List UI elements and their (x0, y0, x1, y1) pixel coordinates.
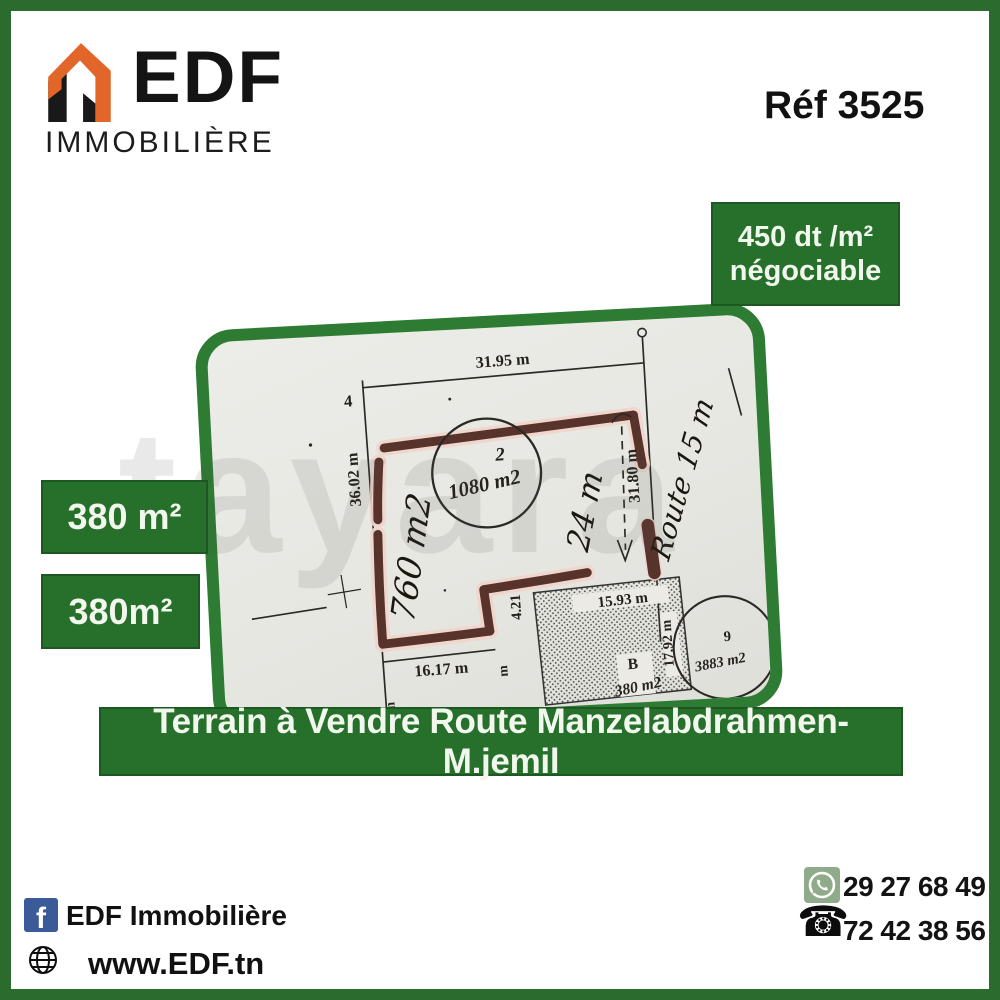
unit-m-label: m (495, 664, 511, 677)
area-badge-2: 380m² (41, 574, 200, 649)
survey-point-marker (638, 328, 647, 337)
house-logo-icon (46, 40, 114, 122)
lot9-number: 9 (723, 629, 731, 645)
facebook-page-name: EDF Immobilière (66, 900, 287, 932)
website-url: www.EDF.tn (88, 946, 264, 982)
lot-b-label: B (627, 655, 639, 673)
real-estate-poster: EDF IMMOBILIÈRE Réf 3525 450 dt /m² négo… (0, 0, 1000, 1000)
price-value: 450 dt /m² (730, 220, 882, 254)
globe-icon (27, 944, 59, 976)
phone-icon: ☎ (797, 901, 849, 943)
lot9-area: 3883 m2 (692, 650, 747, 676)
dim-top: 31.95 m (475, 350, 531, 372)
price-badge: 450 dt /m² négociable (711, 202, 900, 306)
phone-number: 72 42 38 56 (843, 915, 985, 947)
title-banner: Terrain à Vendre Route Manzelabdrahmen-M… (99, 707, 903, 776)
phone-glyph: ☎ (797, 897, 849, 946)
dim-step: 4.21 (508, 594, 526, 621)
dim-bottom: 16.17 m (414, 659, 470, 681)
brand-subtitle: IMMOBILIÈRE (45, 126, 275, 160)
listing-reference: Réf 3525 (764, 84, 924, 128)
area-badge-1: 380 m² (41, 480, 208, 554)
price-negotiable: négociable (730, 254, 882, 288)
whatsapp-number: 29 27 68 49 (843, 871, 985, 903)
facebook-icon: f (24, 898, 58, 932)
brand-name: EDF (132, 36, 284, 119)
facebook-glyph: f (36, 905, 46, 932)
